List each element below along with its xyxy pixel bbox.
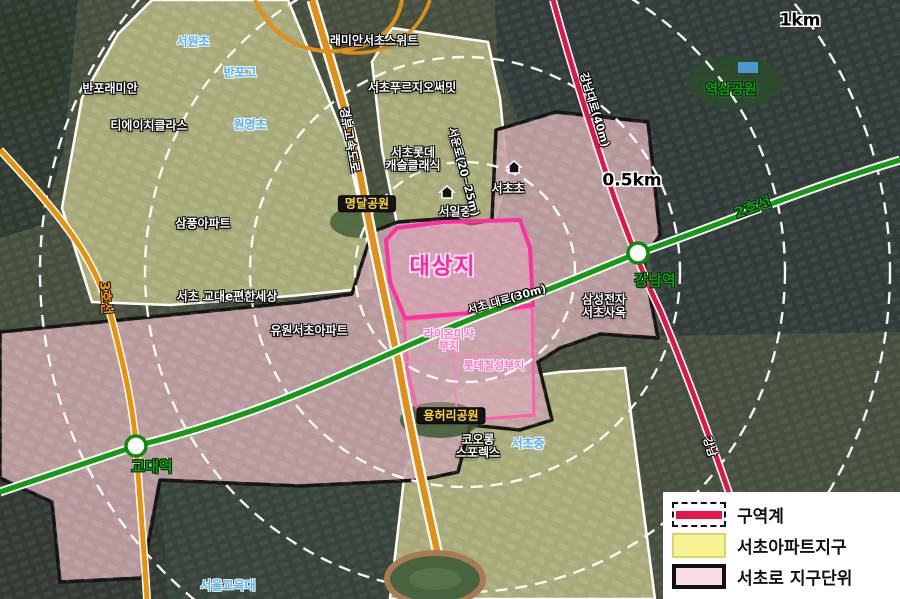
legend-swatch-district-unit — [672, 564, 726, 589]
gangnam-station-marker — [628, 243, 648, 263]
legend-label-district-unit: 서초로 지구단위 — [737, 564, 852, 589]
pool — [738, 62, 758, 73]
legend-swatch-apartment-district — [672, 533, 726, 558]
legend-swatch-boundary — [672, 502, 726, 527]
satellite-map: 반포래미안 티에이치클라스 삼풍아파트 래미안서초스위트 서초푸르지오써밋 서초… — [0, 0, 900, 599]
legend: 구역계 서초아파트지구 서초로 지구단위 — [663, 492, 900, 599]
gyodae-station-marker — [126, 436, 146, 456]
legend-label-apartment-district: 서초아파트지구 — [737, 533, 846, 558]
legend-row-district-unit: 서초로 지구단위 — [672, 561, 900, 592]
legend-row-apartment-district: 서초아파트지구 — [672, 530, 900, 561]
legend-row-boundary: 구역계 — [672, 499, 900, 530]
track-infield — [409, 568, 461, 590]
legend-red-bar — [676, 511, 722, 519]
legend-label-boundary: 구역계 — [737, 502, 784, 527]
